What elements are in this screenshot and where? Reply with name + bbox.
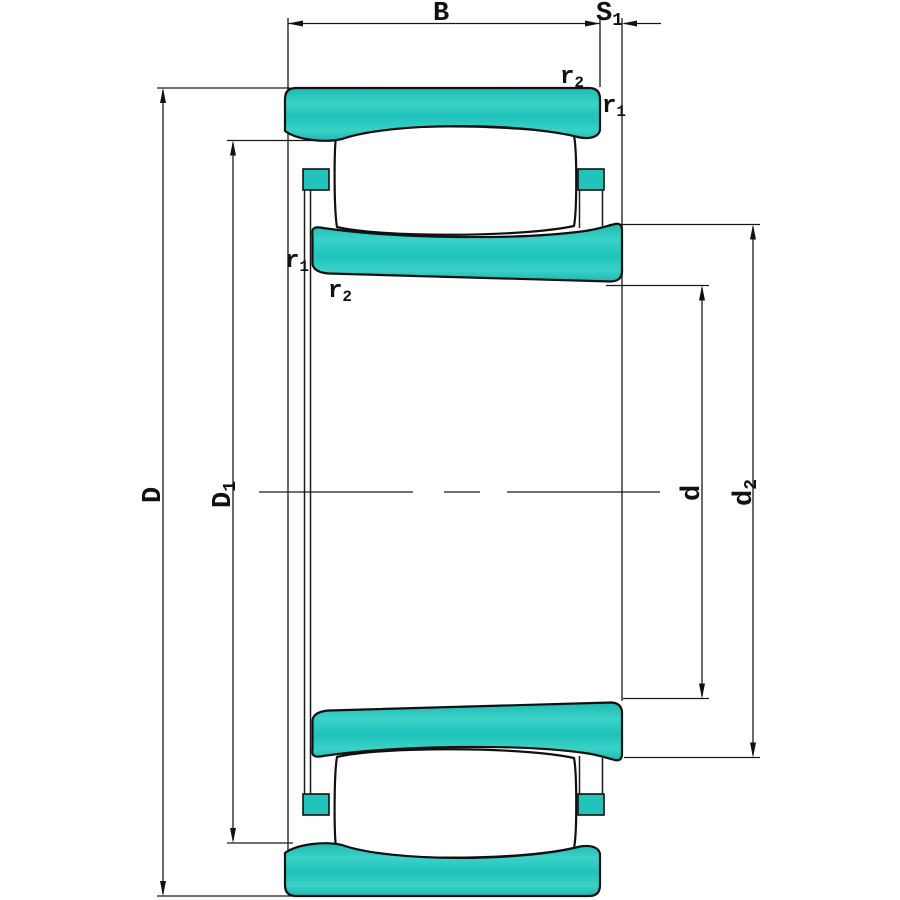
arrowhead-d-bottom bbox=[699, 684, 705, 699]
dim-label-d2: d2 bbox=[730, 479, 762, 506]
dim-label-d: d bbox=[678, 485, 708, 501]
cage-bar-bottom-right bbox=[578, 794, 604, 815]
arrowhead-d2-bottom bbox=[750, 743, 756, 758]
arrowhead-d-top bbox=[699, 286, 705, 301]
chamfer-label-r1-inner: r1 bbox=[285, 248, 309, 276]
dim-label-D: D bbox=[139, 487, 169, 503]
dimension-S1 bbox=[622, 21, 661, 27]
arrowhead-S1 bbox=[622, 21, 637, 27]
bearing-cross-section-diagram: B S1 D D1 d d2 r2 r1 r1 r2 bbox=[0, 0, 900, 900]
arrowhead-D-top bbox=[160, 88, 166, 103]
dim-label-B: B bbox=[433, 0, 449, 29]
arrowhead-D-bottom bbox=[160, 881, 166, 896]
chamfer-label-r2-top: r2 bbox=[560, 64, 584, 92]
arrowhead-D1-bottom bbox=[230, 828, 236, 843]
chamfer-label-r2-inner: r2 bbox=[328, 278, 352, 306]
roller-top bbox=[335, 126, 577, 234]
cage-bar-top-right bbox=[578, 169, 604, 190]
bearing-drawing-page: B S1 D D1 d d2 r2 r1 r1 r2 bbox=[0, 0, 900, 900]
arrowhead-D1-top bbox=[230, 141, 236, 156]
dim-label-D1: D1 bbox=[209, 481, 241, 508]
arrowhead-d2-top bbox=[750, 225, 756, 240]
roller-bottom bbox=[335, 749, 577, 857]
dim-label-S1: S1 bbox=[596, 0, 623, 31]
cage-bar-bottom-left bbox=[303, 794, 329, 815]
cage-bar-top-left bbox=[303, 169, 329, 190]
arrowhead-B-left bbox=[288, 21, 303, 27]
